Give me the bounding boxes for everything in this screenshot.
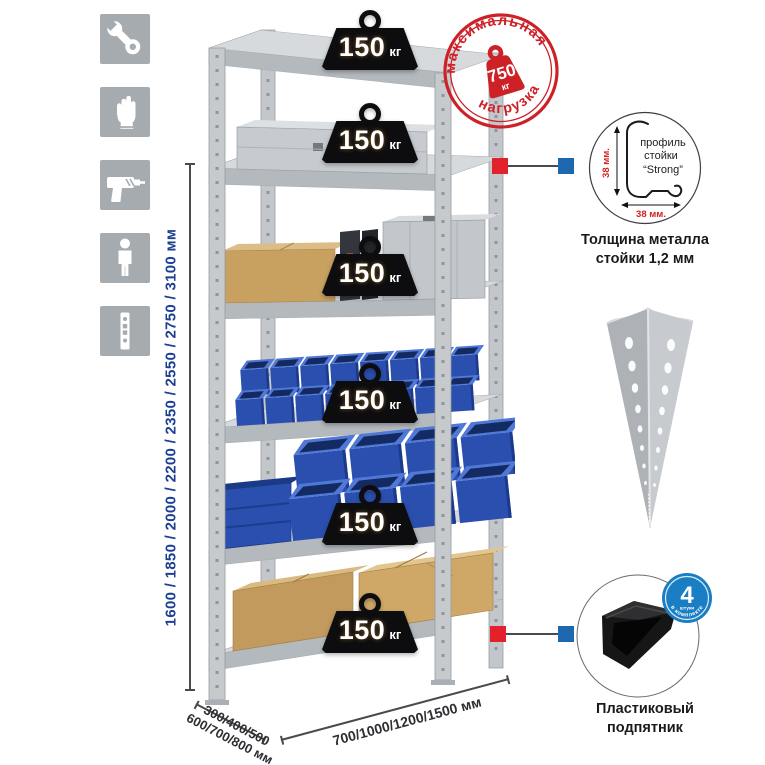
foot-caption: Пластиковый подпятник	[565, 700, 725, 737]
foot-caption-line2: подпятник	[565, 719, 725, 738]
gloves-icon	[100, 87, 150, 137]
connector-blue-top	[558, 158, 574, 174]
weight-badge: 150кг	[322, 485, 418, 545]
weight-ring	[359, 485, 381, 507]
weight-badge: 150кг	[322, 103, 418, 163]
quantity-number: 4	[680, 582, 694, 609]
quantity-sub: штуки	[680, 607, 695, 612]
weight-unit: кг	[389, 44, 401, 59]
weight-ring	[359, 593, 381, 615]
weight-ring	[359, 10, 381, 32]
connector-red-top	[492, 158, 508, 174]
product-infographic: 1600 / 1850 / 2000 / 2200 / 2350 / 2550 …	[0, 0, 765, 765]
weight-unit: кг	[389, 519, 401, 534]
weight-value: 150	[339, 509, 386, 536]
weight-badge: 150кг	[322, 363, 418, 423]
connector-red-bottom	[490, 626, 506, 642]
height-dimension-label: 1600 / 1850 / 2000 / 2200 / 2350 / 2550 …	[163, 163, 180, 693]
height-dimension-line	[189, 163, 191, 691]
weight-ring	[359, 363, 381, 385]
quantity-badge: 4 штуки в комплекте	[660, 571, 714, 625]
feature-wrench	[100, 14, 150, 64]
profile-label-3: “Strong”	[643, 164, 683, 176]
person-icon	[100, 233, 150, 283]
feature-gloves	[100, 87, 150, 137]
drill-icon	[100, 160, 150, 210]
weight-ring	[359, 103, 381, 125]
profile-dim-horizontal: 38 мм.	[636, 209, 666, 220]
connector-line-bottom	[506, 633, 558, 635]
feature-drill	[100, 160, 150, 210]
wrench-icon	[100, 14, 150, 64]
profile-caption-line1: Толщина металла	[560, 231, 730, 250]
weight-ring	[359, 236, 381, 258]
profile-caption-line2: стойки 1,2 мм	[560, 250, 730, 269]
rack-post-icon	[100, 306, 150, 356]
weight-unit: кг	[389, 627, 401, 642]
profile-detail-circle: 38 мм. 38 мм. профиль стойки “Strong”	[582, 105, 708, 231]
profile-caption: Толщина металла стойки 1,2 мм	[560, 231, 730, 268]
profile-label-2: стойки	[644, 150, 678, 162]
foot-caption-line1: Пластиковый	[565, 700, 725, 719]
weight-value: 150	[339, 260, 386, 287]
connector-line-top	[508, 165, 558, 167]
weight-badge: 150кг	[322, 10, 418, 70]
profile-label-1: профиль	[640, 137, 686, 149]
feature-person	[100, 233, 150, 283]
weight-badge: 150кг	[322, 236, 418, 296]
weight-value: 150	[339, 387, 386, 414]
feature-rack-post	[100, 306, 150, 356]
weight-badge: 150кг	[322, 593, 418, 653]
weight-unit: кг	[389, 397, 401, 412]
weight-value: 150	[339, 34, 386, 61]
weight-value: 150	[339, 127, 386, 154]
weight-value: 150	[339, 617, 386, 644]
weight-unit: кг	[389, 270, 401, 285]
profile-dim-vertical: 38 мм.	[601, 148, 612, 178]
weight-unit: кг	[389, 137, 401, 152]
corner-post-image	[598, 296, 702, 538]
